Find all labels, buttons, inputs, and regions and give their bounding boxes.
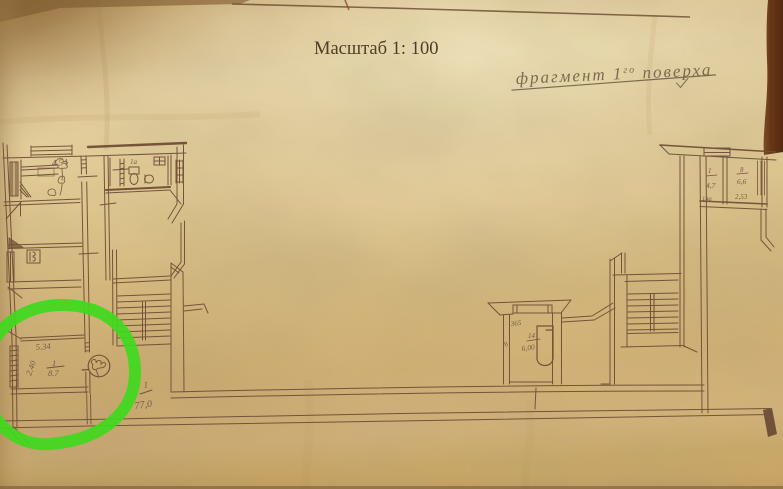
svg-text:4,7: 4,7 — [706, 181, 716, 190]
svg-text:Масштаб 1: 100: Масштаб 1: 100 — [314, 39, 438, 59]
svg-text:4.54: 4.54 — [51, 157, 68, 168]
svg-text:8.7: 8.7 — [48, 368, 59, 378]
svg-text:2,53: 2,53 — [735, 193, 748, 201]
svg-text:1а: 1а — [130, 158, 138, 166]
svg-text:5.34: 5.34 — [35, 341, 51, 352]
svg-text:6,00: 6,00 — [521, 342, 535, 353]
svg-text:6,6: 6,6 — [737, 177, 747, 186]
svg-text:8: 8 — [740, 166, 744, 174]
svg-text:14: 14 — [528, 332, 536, 340]
svg-text:365: 365 — [509, 319, 522, 328]
svg-text:14а: 14а — [702, 196, 712, 203]
svg-text:1: 1 — [708, 167, 712, 175]
